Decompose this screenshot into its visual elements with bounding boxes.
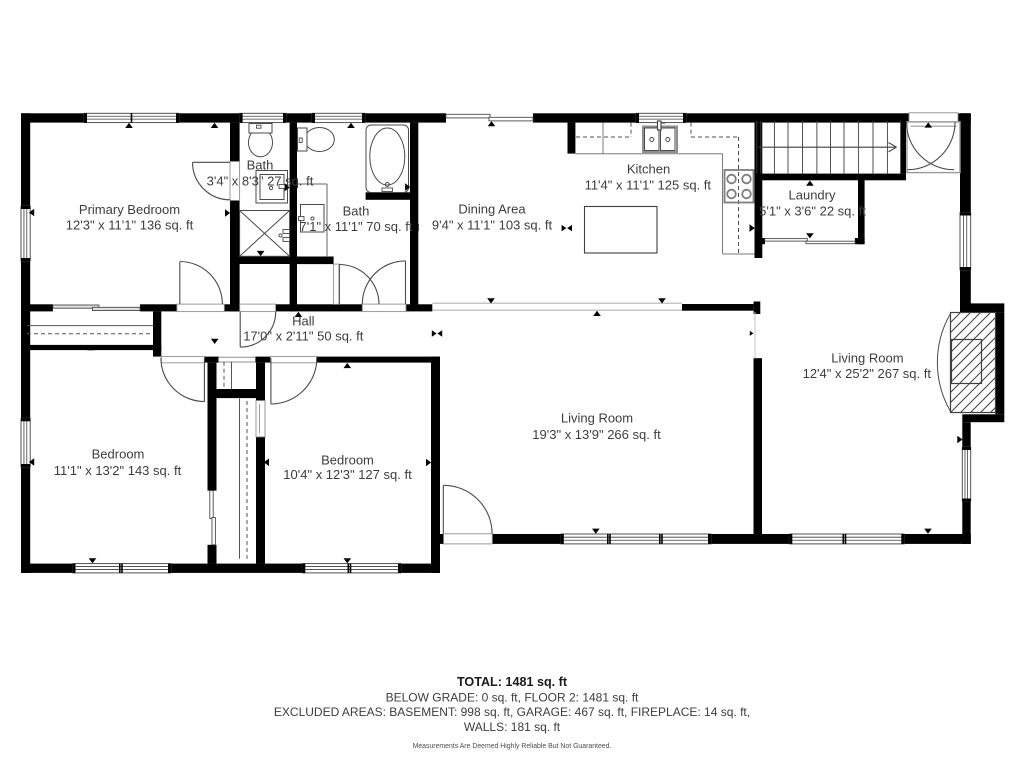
- svg-text:11'4" x 11'1" 125 sq. ft: 11'4" x 11'1" 125 sq. ft: [585, 178, 712, 193]
- svg-text:12'3" x 11'1" 136 sq. ft: 12'3" x 11'1" 136 sq. ft: [66, 218, 194, 233]
- svg-text:19'3" x 13'9" 266 sq. ft: 19'3" x 13'9" 266 sq. ft: [532, 427, 661, 442]
- svg-text:Bedroom: Bedroom: [92, 447, 145, 462]
- svg-text:10'4" x 12'3" 127 sq. ft: 10'4" x 12'3" 127 sq. ft: [283, 467, 412, 482]
- svg-text:12'4" x 25'2" 267 sq. ft: 12'4" x 25'2" 267 sq. ft: [803, 366, 932, 381]
- svg-text:9'4" x 11'1" 103 sq. ft: 9'4" x 11'1" 103 sq. ft: [432, 218, 553, 233]
- svg-text:5'1" x 3'6" 22 sq. ft: 5'1" x 3'6" 22 sq. ft: [759, 204, 866, 219]
- svg-text:EXCLUDED AREAS: BASEMENT: 998: EXCLUDED AREAS: BASEMENT: 998 sq. ft, GA…: [274, 705, 750, 719]
- svg-text:Bath: Bath: [247, 158, 274, 173]
- svg-text:Living Room: Living Room: [831, 351, 903, 366]
- svg-text:Hall: Hall: [292, 314, 315, 329]
- svg-text:WALLS: 181 sq. ft: WALLS: 181 sq. ft: [464, 720, 561, 734]
- svg-text:Measurements Are Deemed Highly: Measurements Are Deemed Highly Reliable …: [413, 743, 612, 750]
- svg-text:TOTAL: 1481 sq. ft: TOTAL: 1481 sq. ft: [457, 675, 568, 689]
- svg-text:11'1" x 13'2" 143 sq. ft: 11'1" x 13'2" 143 sq. ft: [54, 463, 182, 478]
- svg-text:Bath: Bath: [343, 204, 370, 219]
- svg-text:BELOW GRADE: 0 sq. ft, FLOOR 2: BELOW GRADE: 0 sq. ft, FLOOR 2: 1481 sq.…: [386, 690, 639, 704]
- svg-text:Laundry: Laundry: [789, 188, 836, 203]
- svg-text:Kitchen: Kitchen: [627, 162, 670, 177]
- svg-text:Primary Bedroom: Primary Bedroom: [79, 202, 180, 217]
- svg-text:Dining Area: Dining Area: [458, 202, 526, 217]
- svg-text:3'4" x 8'3" 27 sq. ft: 3'4" x 8'3" 27 sq. ft: [207, 174, 314, 189]
- svg-text:7'1" x 11'1" 70 sq. ft: 7'1" x 11'1" 70 sq. ft: [300, 219, 413, 234]
- svg-text:17'0" x 2'11" 50 sq. ft: 17'0" x 2'11" 50 sq. ft: [243, 329, 364, 344]
- svg-text:Living Room: Living Room: [561, 411, 633, 426]
- svg-text:Bedroom: Bedroom: [321, 453, 374, 468]
